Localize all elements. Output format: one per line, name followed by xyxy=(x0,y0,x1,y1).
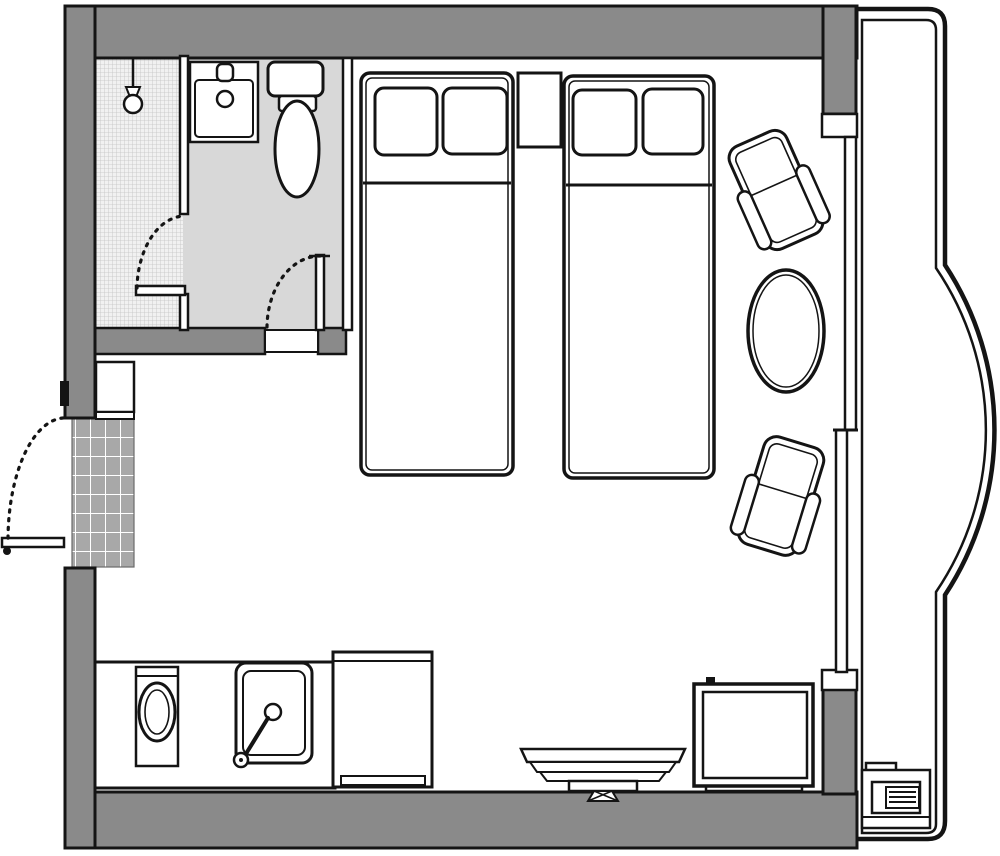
wall-top xyxy=(65,6,857,58)
wall-column-se xyxy=(823,688,856,794)
entry-door-swing xyxy=(8,418,63,540)
wall-bottom xyxy=(65,792,857,848)
armchair-2 xyxy=(727,431,834,561)
window-lower xyxy=(836,430,847,672)
bathroom-sink xyxy=(190,62,258,142)
entry-door-leaf xyxy=(2,538,64,547)
pillow xyxy=(375,88,437,155)
shower-door-leaf xyxy=(136,286,185,295)
wall-bathroom-east xyxy=(343,58,352,330)
window-wall xyxy=(822,114,858,690)
kitchen-sink xyxy=(234,663,312,767)
balcony-floor xyxy=(862,20,986,833)
wall-left-lower xyxy=(65,568,95,848)
wall-bathroom-south xyxy=(90,328,265,354)
wall-pillar-ne xyxy=(823,6,856,114)
round-table xyxy=(748,270,824,392)
pillow xyxy=(443,88,507,154)
door-stop-marker xyxy=(60,381,69,406)
kitchenette xyxy=(95,652,432,788)
shower-divider-lower xyxy=(180,294,188,330)
balcony-railing xyxy=(858,9,994,839)
entry-mat xyxy=(72,417,134,567)
bed-1 xyxy=(361,73,513,475)
pillow xyxy=(643,89,703,154)
bathroom-door-threshold xyxy=(265,330,318,352)
tv-screen xyxy=(703,692,807,778)
armchair-1 xyxy=(718,123,835,257)
balcony xyxy=(858,9,994,839)
washing-machine xyxy=(136,667,178,766)
entry-door-handle xyxy=(3,547,11,555)
entry-closet xyxy=(96,362,134,412)
pillow xyxy=(573,90,636,155)
shower-divider-upper xyxy=(180,56,188,214)
refrigerator xyxy=(333,652,432,787)
ac-unit xyxy=(862,763,930,828)
nightstand xyxy=(518,73,561,147)
bed-2 xyxy=(564,76,714,478)
entry-closet-band xyxy=(96,412,134,419)
wall-stub xyxy=(318,328,346,354)
tv-power-nub xyxy=(706,677,715,685)
tv xyxy=(694,677,813,791)
window-upper xyxy=(845,137,856,430)
bathroom-door-leaf xyxy=(316,255,324,330)
window-sill-top xyxy=(822,114,857,137)
wall-left-upper xyxy=(65,6,95,418)
floor-plan xyxy=(0,0,1000,856)
floor-plan-canvas xyxy=(0,0,1000,856)
